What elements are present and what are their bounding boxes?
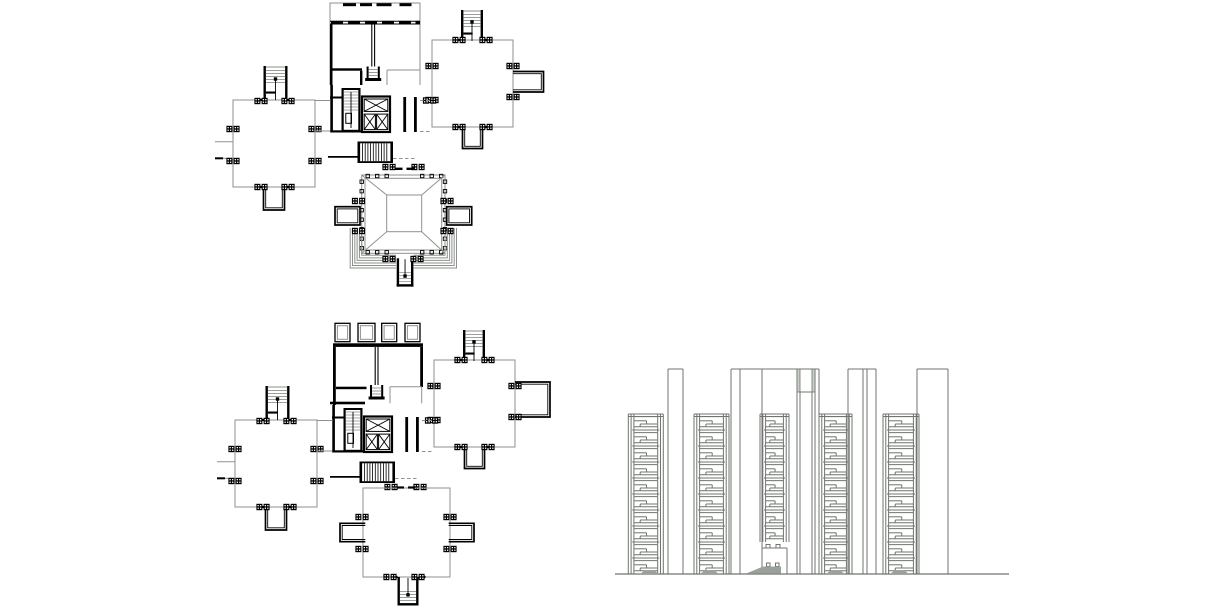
- roof-pavilion: [335, 169, 472, 287]
- side-terrace: [513, 72, 544, 93]
- window-bay: [628, 414, 663, 574]
- cad-drawing: [0, 0, 1220, 610]
- left-wing: [217, 386, 324, 530]
- upper-suite-block: [330, 323, 423, 405]
- lower-wing: [340, 488, 474, 606]
- stair-elevator-core: [330, 85, 436, 133]
- window-bay: [760, 414, 789, 542]
- window-bay: [819, 414, 852, 574]
- upper-floor-plan: [215, 3, 544, 287]
- left-wing: [215, 66, 322, 210]
- upper-suite-block: [330, 3, 420, 85]
- right-wing: [427, 330, 550, 469]
- window-bay: [883, 414, 919, 574]
- window-bay: [694, 414, 729, 574]
- stair-elevator-core: [332, 405, 438, 453]
- drawing-viewport: [0, 0, 1220, 610]
- right-wing: [425, 10, 543, 149]
- building-elevation: [615, 369, 1009, 574]
- entry-stair: [358, 142, 425, 171]
- entrance: [746, 545, 787, 575]
- lower-floor-plan: [217, 323, 550, 605]
- entry-stair: [360, 462, 427, 491]
